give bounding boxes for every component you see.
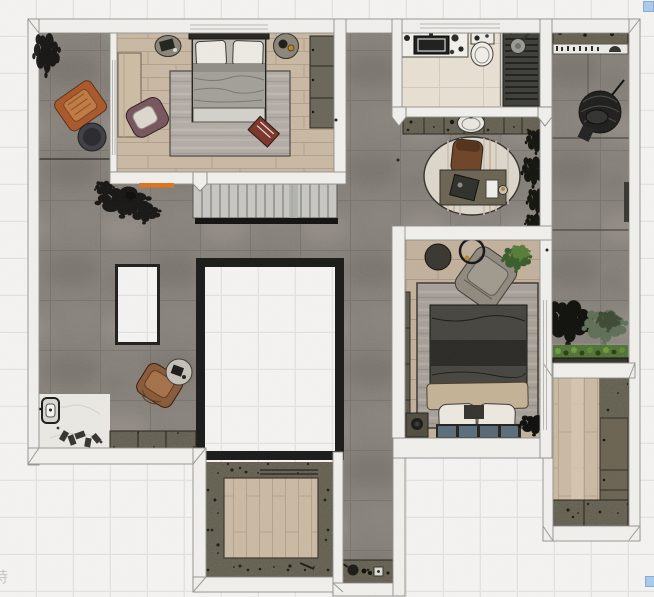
floorplan-drawing	[0, 0, 654, 597]
floorplan-viewport: 特	[0, 0, 654, 597]
render-grain-overlay	[0, 0, 654, 597]
selection-handle-top-right[interactable]	[643, 1, 654, 12]
watermark-text: 特	[0, 566, 9, 587]
selection-handle-bottom-right[interactable]	[645, 576, 654, 587]
